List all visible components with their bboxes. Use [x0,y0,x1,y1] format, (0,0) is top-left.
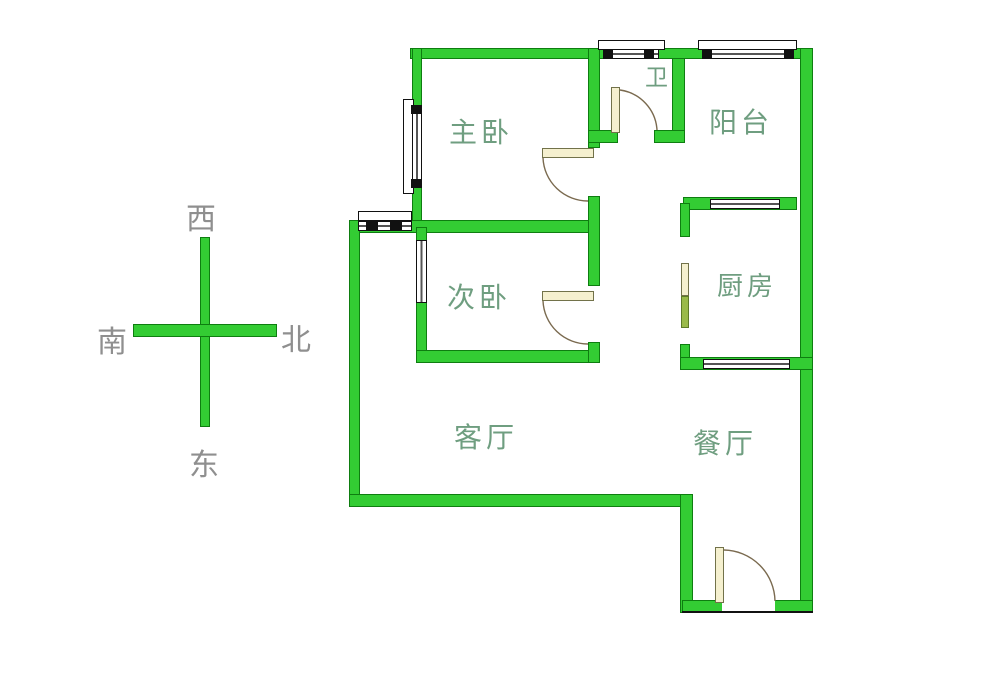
kitchen-top-window [710,199,780,209]
second-bedroom-window [416,240,427,303]
kitchen-door-leaf [681,263,689,296]
entry-door-arc [724,550,775,601]
wall-living-left [349,220,360,507]
wall-right [800,48,813,613]
entry-door-leaf [715,547,724,603]
master-bay-window-frame [412,107,422,188]
balcony-window-frame [705,49,790,59]
living-top-window-post-left [366,220,378,231]
wall-entry-left [680,494,693,613]
master-door-arc [543,158,588,201]
living-top-window-post-right [390,220,402,231]
compass-south-label: 南 [97,317,127,361]
entry-bottom-outline [682,611,813,613]
second-bedroom-door-arc [543,301,588,344]
master-door-leaf [542,148,594,158]
wall-bathroom-bottom-right [654,130,685,143]
balcony-window-post-right [784,49,794,59]
balcony-window-post-left [702,49,712,59]
compass-west-label: 西 [186,194,216,238]
compass-north-label: 北 [281,315,311,359]
wall-center-lower [588,342,600,363]
dining-room-label: 餐厅 [693,422,757,462]
second-bedroom-door-leaf [542,291,594,301]
kitchen-label: 厨房 [717,266,777,303]
master-bay-window-post-top [411,105,422,114]
bathroom-window-post-left [603,49,613,59]
wall-living-bottom [349,494,693,507]
master-bay-window-post-bottom [411,179,422,188]
wall-kitchen-left-top [680,203,690,237]
kitchen-door-track [681,296,689,328]
bathroom-door-arc [620,90,657,130]
master-bedroom-label: 主卧 [449,111,513,151]
balcony-label: 阳台 [709,101,773,141]
bathroom-label: 卫 [645,58,672,92]
compass-horizontal-bar [133,324,277,337]
wall-center-middle [588,196,600,286]
bathroom-door-leaf [611,87,620,133]
wall-second-bedroom-bottom [416,350,600,363]
compass-east-label: 东 [189,440,219,484]
door-swing-arcs [0,0,1000,684]
second-bedroom-label: 次卧 [447,276,511,316]
living-room-label: 客厅 [454,416,518,456]
kitchen-bottom-window [703,359,790,369]
entry-door-opening [722,600,775,611]
